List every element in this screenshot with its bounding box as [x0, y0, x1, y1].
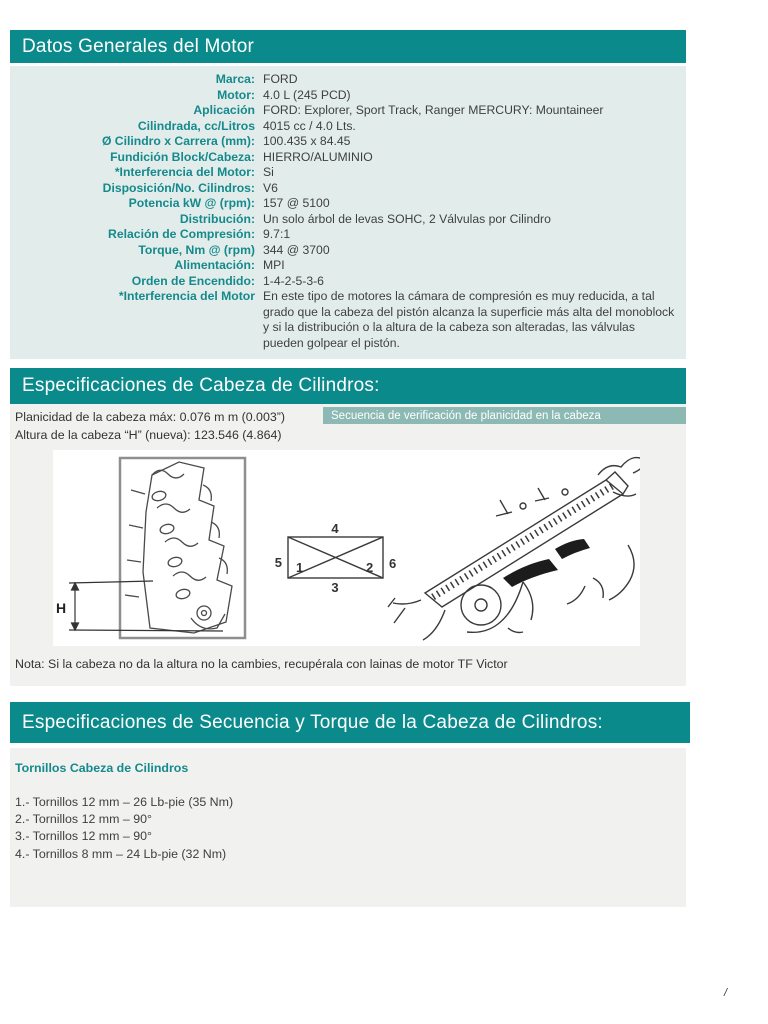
row-value: 1-4-2-5-3-6	[263, 274, 324, 290]
sequence-label-5: 5	[275, 555, 282, 570]
tornillos-subtitle: Tornillos Cabeza de Cilindros	[15, 761, 188, 775]
spec-row: *Interferencia del MotorEn este tipo de …	[10, 289, 686, 351]
sequence-diagram: 4 5 1 2 6 3	[275, 521, 396, 595]
spec-row: Disposición/No. Cilindros:V6	[10, 181, 686, 197]
row-label: Aplicación	[10, 103, 255, 119]
row-label: Marca:	[10, 72, 255, 88]
straightedge-drawing	[388, 458, 640, 640]
spec-row: Relación de Compresión:9.7:1	[10, 227, 686, 243]
torque-step: 4.- Tornillos 8 mm – 24 Lb-pie (32 Nm)	[15, 846, 233, 863]
row-value: FORD: Explorer, Sport Track, Ranger MERC…	[263, 103, 603, 119]
spec-row: Alimentación:MPI	[10, 258, 686, 274]
row-label: *Interferencia del Motor	[10, 289, 255, 351]
spec-row: Potencia kW @ (rpm):157 @ 5100	[10, 196, 686, 212]
section-header-cabeza-cilindros: Especificaciones de Cabeza de Cilindros:	[10, 368, 686, 404]
head-specs-panel: Planicidad de la cabeza máx: 0.076 m m (…	[10, 404, 686, 686]
page-indicator: /	[724, 987, 727, 999]
row-value: 100.435 x 84.45	[263, 134, 350, 150]
row-label: Cilindrada, cc/Litros	[10, 119, 255, 135]
engine-data-panel: Marca:FORD Motor:4.0 L (245 PCD) Aplicac…	[10, 66, 686, 359]
row-label: Alimentación:	[10, 258, 255, 274]
row-value: 4.0 L (245 PCD)	[263, 88, 351, 104]
flatness-spec: Planicidad de la cabeza máx: 0.076 m m (…	[15, 410, 285, 424]
row-value: 4015 cc / 4.0 Lts.	[263, 119, 356, 135]
head-figure: H 4 5 1 2 6 3	[53, 450, 640, 646]
sequence-label-3: 3	[331, 580, 338, 595]
section-title: Especificaciones de Cabeza de Cilindros:	[22, 375, 380, 397]
row-label: Orden de Encendido:	[10, 274, 255, 290]
row-label: Disposición/No. Cilindros:	[10, 181, 255, 197]
sequence-label-1: 1	[296, 560, 303, 575]
row-label: Distribución:	[10, 212, 255, 228]
section-header-datos-generales: Datos Generales del Motor	[10, 30, 686, 63]
row-value: 344 @ 3700	[263, 243, 330, 259]
spec-row: Ø Cilindro x Carrera (mm):100.435 x 84.4…	[10, 134, 686, 150]
spec-row: Marca:FORD	[10, 72, 686, 88]
spec-row: Fundición Block/Cabeza:HIERRO/ALUMINIO	[10, 150, 686, 166]
sequence-label-6: 6	[389, 556, 396, 571]
sequence-label-2: 2	[366, 560, 373, 575]
head-figure-svg: H 4 5 1 2 6 3	[53, 450, 640, 646]
sequence-subheader-label: Secuencia de verificación de planicidad …	[331, 410, 601, 422]
row-value: Un solo árbol de levas SOHC, 2 Válvulas …	[263, 212, 551, 228]
section-title: Datos Generales del Motor	[22, 36, 254, 58]
torque-panel: Tornillos Cabeza de Cilindros 1.- Tornil…	[10, 748, 686, 907]
row-value: 157 @ 5100	[263, 196, 330, 212]
sequence-subheader: Secuencia de verificación de planicidad …	[323, 407, 686, 424]
head-height-spec: Altura de la cabeza “H” (nueva): 123.546…	[15, 428, 282, 442]
row-label: Motor:	[10, 88, 255, 104]
spec-row: Motor:4.0 L (245 PCD)	[10, 88, 686, 104]
h-dimension: H	[56, 581, 223, 631]
row-value: V6	[263, 181, 278, 197]
cylinder-head-drawing	[120, 458, 245, 638]
spec-row: Torque, Nm @ (rpm)344 @ 3700	[10, 243, 686, 259]
spec-row: Distribución:Un solo árbol de levas SOHC…	[10, 212, 686, 228]
row-label: Torque, Nm @ (rpm)	[10, 243, 255, 259]
row-label: Potencia kW @ (rpm):	[10, 196, 255, 212]
row-label: *Interferencia del Motor:	[10, 165, 255, 181]
torque-step: 2.- Tornillos 12 mm – 90°	[15, 811, 233, 828]
spec-row: Cilindrada, cc/Litros4015 cc / 4.0 Lts.	[10, 119, 686, 135]
spec-row: *Interferencia del Motor:Si	[10, 165, 686, 181]
spec-row: Orden de Encendido:1-4-2-5-3-6	[10, 274, 686, 290]
section-header-secuencia-torque: Especificaciones de Secuencia y Torque d…	[10, 702, 690, 743]
row-value: Si	[263, 165, 274, 181]
row-label: Relación de Compresión:	[10, 227, 255, 243]
row-value: En este tipo de motores la cámara de com…	[263, 289, 677, 351]
row-value: HIERRO/ALUMINIO	[263, 150, 373, 166]
h-dimension-label: H	[56, 600, 66, 616]
row-value: FORD	[263, 72, 298, 88]
note-line: Nota: Si la cabeza no da la altura no la…	[15, 657, 508, 671]
torque-list: 1.- Tornillos 12 mm – 26 Lb-pie (35 Nm) …	[15, 794, 233, 863]
sequence-label-4: 4	[331, 521, 339, 536]
spec-row: AplicaciónFORD: Explorer, Sport Track, R…	[10, 103, 686, 119]
row-label: Fundición Block/Cabeza:	[10, 150, 255, 166]
row-label: Ø Cilindro x Carrera (mm):	[10, 134, 255, 150]
section-title: Especificaciones de Secuencia y Torque d…	[22, 712, 603, 734]
row-value: MPI	[263, 258, 285, 274]
torque-step: 1.- Tornillos 12 mm – 26 Lb-pie (35 Nm)	[15, 794, 233, 811]
torque-step: 3.- Tornillos 12 mm – 90°	[15, 828, 233, 845]
row-value: 9.7:1	[263, 227, 290, 243]
